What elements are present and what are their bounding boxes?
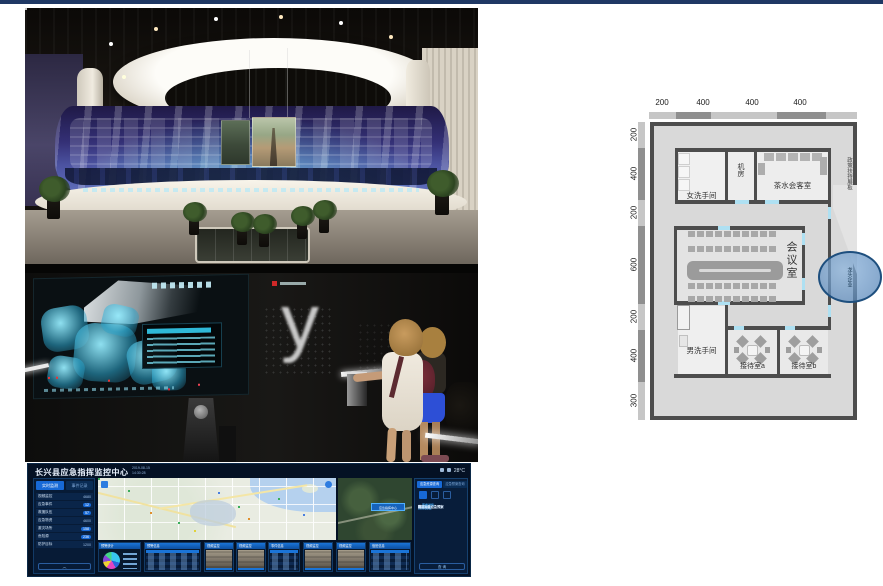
conference-chair bbox=[688, 283, 695, 289]
conference-chair bbox=[769, 283, 776, 289]
conference-chair bbox=[733, 231, 740, 237]
sidebar-tab-1[interactable]: 事件记录 bbox=[66, 481, 93, 490]
pedestal-stand bbox=[183, 398, 219, 462]
conference-chair bbox=[724, 296, 731, 302]
bell-icon bbox=[447, 468, 451, 472]
visitor-1-hair bbox=[389, 319, 423, 356]
conference-table bbox=[687, 261, 783, 280]
monitoring-dashboard-screenshot: 长兴县应急指挥监控中心 2019-08-15 14:30:28 28°C 实时监… bbox=[27, 463, 471, 577]
stat-label: 避灾场所 bbox=[38, 526, 52, 531]
stat-value: 57 bbox=[83, 511, 91, 515]
layers-icon-button[interactable] bbox=[431, 491, 439, 499]
conference-chair bbox=[688, 231, 695, 237]
conference-chair bbox=[733, 296, 740, 302]
video-control-bar bbox=[338, 568, 364, 570]
sofa-segment bbox=[800, 153, 810, 161]
circle-label: 龙头企业 bbox=[847, 267, 854, 287]
conference-chair bbox=[769, 246, 776, 252]
visitor-2-hair bbox=[419, 327, 446, 358]
conference-chair bbox=[706, 296, 713, 302]
left-dimension-label: 400 bbox=[630, 345, 639, 367]
reception-chair bbox=[734, 347, 739, 353]
visitor-1-leg bbox=[402, 430, 411, 462]
left-ruler-segment bbox=[638, 304, 645, 330]
pie-legend bbox=[123, 553, 137, 569]
top-ruler-segment bbox=[777, 112, 826, 119]
sidebar-tab-0[interactable]: 实时监测 bbox=[36, 481, 64, 490]
stat-value: 4680 bbox=[83, 495, 91, 499]
top-dimension-label: 400 bbox=[788, 98, 812, 107]
sidebar-stat-row[interactable]: 防护目标1200 bbox=[36, 541, 93, 548]
reception-chair bbox=[765, 347, 770, 353]
stat-label: 视频监控 bbox=[38, 494, 52, 499]
left-dimension-label: 400 bbox=[630, 163, 639, 185]
conference-chair bbox=[724, 283, 731, 289]
visitor-1-leg bbox=[386, 428, 397, 462]
plant-foliage bbox=[231, 212, 255, 232]
tab-resource-query[interactable]: 应急资源查询 bbox=[417, 481, 442, 488]
wall-letter-glyph: y bbox=[281, 272, 351, 372]
top-dimension-label: 400 bbox=[691, 98, 715, 107]
left-ruler-segment bbox=[638, 382, 645, 420]
red-logo bbox=[272, 281, 277, 286]
video-thumbnail[interactable] bbox=[238, 550, 264, 568]
panel-table-body bbox=[146, 550, 199, 570]
conference-chair bbox=[724, 246, 731, 252]
conference-chair bbox=[751, 246, 758, 252]
conference-chair bbox=[751, 231, 758, 237]
satellite-map[interactable]: 应急指挥中心 bbox=[338, 478, 412, 540]
video-thumbnail[interactable] bbox=[305, 550, 331, 568]
room-label-server: 机房 bbox=[735, 163, 745, 177]
street-map[interactable] bbox=[98, 478, 336, 540]
sidebar-stat-row[interactable]: 应急事件12 bbox=[36, 501, 93, 508]
conference-chair bbox=[751, 296, 758, 302]
warning-pie-chart bbox=[103, 552, 120, 569]
time-text: 14:30:28 bbox=[132, 471, 150, 476]
door-opening bbox=[828, 207, 831, 219]
tree-item[interactable]: 森林火灾应急预案 bbox=[418, 504, 444, 509]
room-label-women-wc: 女洗手间 bbox=[678, 190, 725, 201]
room-label-men-wc: 男洗手间 bbox=[678, 345, 725, 356]
stat-value: 12 bbox=[83, 503, 91, 507]
wall bbox=[725, 148, 728, 204]
sofa-segment bbox=[764, 153, 774, 161]
sidebar-stat-row[interactable]: 视频监控4680 bbox=[36, 493, 93, 500]
grid-icon-button[interactable] bbox=[443, 491, 451, 499]
glass-screen-left bbox=[221, 120, 250, 165]
conference-chair bbox=[760, 231, 767, 237]
sidebar-collapse-button[interactable]: ︿ bbox=[38, 563, 91, 570]
sidebar-stat-row[interactable]: 避灾场所158 bbox=[36, 525, 93, 532]
sofa-segment bbox=[788, 153, 798, 161]
conference-chair bbox=[760, 283, 767, 289]
conference-chair bbox=[688, 296, 695, 302]
conference-chair bbox=[742, 246, 749, 252]
top-ruler-segment bbox=[711, 112, 777, 119]
panel-video: 视频监控 bbox=[336, 542, 366, 572]
panel-video: 视频监控 bbox=[236, 542, 266, 572]
left-dimension-label: 200 bbox=[630, 124, 639, 146]
conference-chair bbox=[706, 283, 713, 289]
conference-chair bbox=[715, 246, 722, 252]
touch-wall-photo: y bbox=[25, 264, 478, 462]
panel-table-body bbox=[270, 550, 298, 570]
panel-pie: 预警统计 bbox=[98, 542, 141, 572]
stat-value: 158 bbox=[81, 527, 91, 531]
dashboard-left-sidebar: 实时监测事件记录 视频监控4680应急事件12救援队伍57应急物资4600避灾场… bbox=[33, 478, 95, 574]
left-ruler-segment bbox=[638, 226, 645, 304]
video-wall-text-streaks bbox=[70, 118, 432, 170]
panel-title: 值班信息 bbox=[370, 543, 410, 549]
video-control-bar bbox=[305, 568, 331, 570]
door-opening bbox=[734, 326, 744, 330]
conference-chair bbox=[715, 296, 722, 302]
left-dimension-label: 600 bbox=[630, 254, 639, 276]
conference-chair bbox=[760, 296, 767, 302]
video-thumbnail[interactable] bbox=[338, 550, 364, 568]
door-opening bbox=[765, 200, 779, 204]
red-markers bbox=[48, 377, 50, 379]
top-dimension-label: 200 bbox=[650, 98, 674, 107]
door-opening bbox=[718, 226, 730, 230]
door-opening bbox=[802, 278, 805, 290]
room-label-reception-a: 接待室a bbox=[728, 361, 777, 371]
conference-chair bbox=[742, 296, 749, 302]
conference-chair bbox=[715, 231, 722, 237]
conference-chair bbox=[769, 231, 776, 237]
sofa-segment bbox=[776, 153, 786, 161]
visitor-1-dress bbox=[382, 352, 423, 431]
sidebar-stat-row[interactable]: 危险源236 bbox=[36, 533, 93, 540]
conference-chair bbox=[751, 283, 758, 289]
floor-plan: 200400400400200400200600200400300 女洗手间 机… bbox=[627, 95, 883, 425]
table-header-row bbox=[371, 550, 409, 553]
panel-title: 视频监控 bbox=[205, 543, 233, 549]
room-label-policy-board: 政策扶持展板 bbox=[842, 157, 853, 213]
wc-stall bbox=[678, 153, 690, 165]
query-button[interactable]: 查 询 bbox=[419, 563, 465, 570]
slide: y 长兴县应急指挥监控中心 2019-08-15 14:30:28 28°C 实… bbox=[0, 0, 883, 586]
dashboard-right-panel: 应急资源查询 应急预案查询 资源类型救援队伍物资装备避灾场所医疗机构专家库预案管… bbox=[414, 478, 468, 574]
tab-plan-query[interactable]: 应急预案查询 bbox=[443, 481, 467, 488]
holo-blob bbox=[45, 354, 86, 391]
conference-chair bbox=[742, 283, 749, 289]
temperature-text: 28°C bbox=[454, 468, 465, 474]
plant-foliage bbox=[39, 176, 70, 202]
glass-screen-right bbox=[252, 117, 296, 167]
video-control-bar bbox=[238, 568, 264, 570]
wall bbox=[675, 148, 831, 152]
left-ruler-segment bbox=[638, 200, 645, 226]
plant-foliage bbox=[291, 206, 315, 226]
video-wall-caption-row bbox=[83, 188, 419, 192]
resource-tree-list[interactable]: 资源类型救援队伍物资装备避灾场所医疗机构专家库预案管理防汛防台应急预案查看详情地… bbox=[418, 503, 466, 561]
bag-on-floor bbox=[445, 382, 478, 434]
left-dimension-label: 300 bbox=[630, 390, 639, 412]
glass-panel-wire bbox=[287, 48, 288, 118]
conference-chair bbox=[742, 231, 749, 237]
top-ruler-segment bbox=[826, 112, 857, 119]
panel-title: 事件信息 bbox=[269, 543, 299, 549]
room-label-meeting: 会议室 bbox=[785, 241, 799, 297]
map-layer-button[interactable] bbox=[101, 481, 108, 488]
glass-panel-wire bbox=[249, 50, 250, 118]
ceiling-lights bbox=[25, 8, 27, 10]
stat-value: 4600 bbox=[83, 519, 91, 523]
wall-display bbox=[33, 274, 249, 400]
top-dimension-label: 400 bbox=[740, 98, 764, 107]
panel-title: 视频监控 bbox=[337, 543, 365, 549]
wc-stall bbox=[678, 166, 690, 178]
conference-chair bbox=[760, 246, 767, 252]
video-thumbnail[interactable] bbox=[206, 550, 232, 568]
panel-table: 事件信息 bbox=[268, 542, 300, 572]
table-header-row bbox=[146, 550, 199, 553]
left-dimension-label: 200 bbox=[630, 202, 639, 224]
stat-label: 应急事件 bbox=[38, 502, 52, 507]
door-opening bbox=[735, 200, 749, 204]
visitor-2-shoe bbox=[421, 455, 449, 462]
stat-label: 危险源 bbox=[38, 534, 49, 539]
stat-value: 1200 bbox=[83, 543, 91, 547]
panel-video: 视频监控 bbox=[204, 542, 234, 572]
panel-table-body bbox=[371, 550, 409, 570]
highlight-circle: 龙头企业 bbox=[818, 251, 882, 303]
panel-title: 预警信息 bbox=[145, 543, 200, 549]
wifi-icon bbox=[440, 468, 444, 472]
plant-foliage bbox=[313, 200, 337, 220]
wall bbox=[674, 226, 805, 230]
panel-title: 视频监控 bbox=[304, 543, 332, 549]
left-ruler-segment bbox=[638, 330, 645, 382]
top-ruler-segment bbox=[676, 112, 711, 119]
map-locate-button[interactable] bbox=[325, 481, 332, 488]
conference-chair bbox=[697, 296, 704, 302]
sidebar-stat-row[interactable]: 应急物资4600 bbox=[36, 517, 93, 524]
door-opening bbox=[828, 305, 831, 317]
wall bbox=[754, 148, 757, 204]
status-area: 28°C bbox=[440, 468, 465, 474]
wc-closet bbox=[677, 305, 690, 330]
door-opening bbox=[802, 233, 805, 245]
armchair bbox=[820, 157, 827, 175]
conference-chair bbox=[697, 231, 704, 237]
floor-model-pit bbox=[195, 227, 310, 263]
stat-label: 应急物资 bbox=[38, 518, 52, 523]
panel-title: 视频监控 bbox=[237, 543, 265, 549]
conference-chair bbox=[688, 246, 695, 252]
exhibition-hall-photo bbox=[25, 8, 478, 264]
stat-value: 236 bbox=[81, 535, 91, 539]
left-ruler-segment bbox=[638, 122, 645, 148]
reception-chair bbox=[817, 347, 822, 353]
room-label-tea: 茶水会客室 bbox=[757, 180, 828, 191]
room-ceiling bbox=[25, 264, 478, 273]
left-dimension-label: 200 bbox=[630, 306, 639, 328]
conference-chair bbox=[706, 246, 713, 252]
date-text: 2019-08-15 bbox=[132, 466, 150, 471]
conference-chair bbox=[724, 231, 731, 237]
left-ruler-segment bbox=[638, 148, 645, 200]
room-label-reception-b: 接待室b bbox=[780, 361, 828, 371]
sidebar-stat-row[interactable]: 救援队伍57 bbox=[36, 509, 93, 516]
video-control-bar bbox=[206, 568, 232, 570]
reception-chair bbox=[786, 347, 791, 353]
panel-table: 预警信息 bbox=[144, 542, 201, 572]
conference-chair bbox=[715, 283, 722, 289]
city-boundary bbox=[190, 500, 236, 526]
wall bbox=[674, 226, 677, 305]
slide-accent-bar bbox=[0, 0, 883, 4]
conference-chair bbox=[706, 231, 713, 237]
conference-chair bbox=[697, 246, 704, 252]
pedestal-stand-small bbox=[219, 426, 236, 462]
plant-foliage bbox=[253, 214, 277, 234]
panel-video: 视频监控 bbox=[303, 542, 333, 572]
satellite-map-label: 应急指挥中心 bbox=[371, 503, 405, 511]
poi-markers bbox=[98, 478, 100, 480]
stat-label: 救援队伍 bbox=[38, 510, 52, 515]
top-ruler-segment bbox=[649, 112, 676, 119]
dashboard-title: 长兴县应急指挥监控中心 bbox=[35, 467, 129, 478]
conference-chair bbox=[697, 283, 704, 289]
door-opening bbox=[785, 326, 795, 330]
conference-chair bbox=[769, 296, 776, 302]
wall bbox=[674, 374, 831, 378]
conference-chair bbox=[733, 283, 740, 289]
table-header-row bbox=[270, 550, 298, 553]
conference-chair bbox=[733, 246, 740, 252]
dashboard-datetime: 2019-08-15 14:30:28 bbox=[132, 466, 150, 475]
armchair bbox=[758, 163, 765, 175]
panel-table: 值班信息 bbox=[369, 542, 411, 572]
wall bbox=[828, 148, 831, 330]
stat-label: 防护目标 bbox=[38, 542, 52, 547]
filter-icon-button[interactable] bbox=[419, 491, 427, 499]
plant-foliage bbox=[183, 202, 207, 222]
panel-title: 预警统计 bbox=[99, 543, 140, 549]
info-panel bbox=[142, 322, 222, 369]
